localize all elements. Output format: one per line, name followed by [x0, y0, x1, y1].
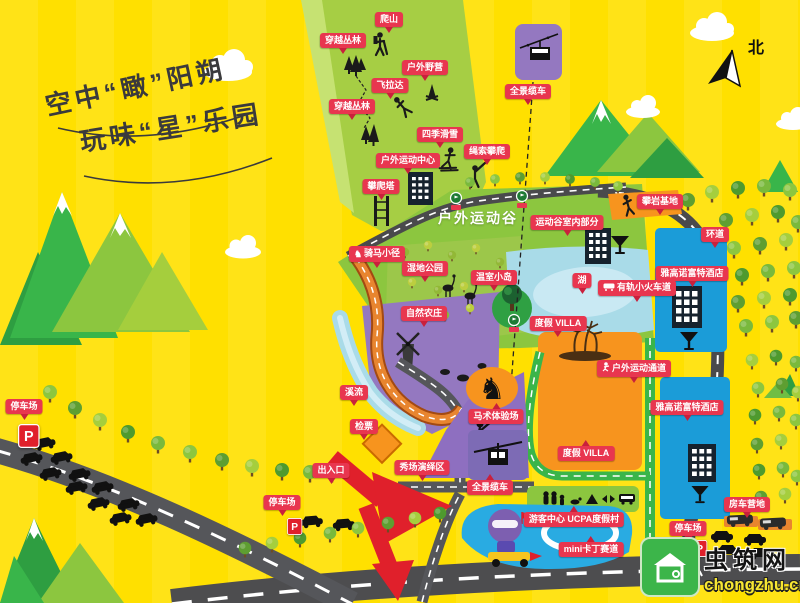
compass: 北 [702, 34, 764, 86]
label-jungle-crossing-1: 穿越丛林 [320, 33, 366, 48]
theme-park-map: ♞ [0, 0, 800, 603]
label-climbing-tower: 攀爬塔 [362, 179, 399, 194]
label-visitor-center: 游客中心 UCPA度假村 [524, 512, 624, 527]
label-novotel-hotel-1: 雅高诺富特酒店 [655, 266, 728, 281]
label-show-performance-area: 秀场演绎区 [394, 460, 449, 475]
label-novotel-hotel-2: 雅高诺富特酒店 [650, 400, 723, 415]
label-parking-left: 停车场 [5, 399, 42, 414]
label-wetland-park: 湿地公园 [402, 261, 448, 276]
label-parking-mid: 停车场 [263, 495, 300, 510]
label-rv-camp: 房车营地 [724, 497, 770, 512]
runner-icon [602, 362, 610, 375]
label-parking-right: 停车场 [669, 521, 706, 536]
label-ring-road: 环道 [701, 227, 729, 242]
parking-sign: P [287, 518, 302, 535]
label-four-season-ski: 四季滑雪 [417, 127, 463, 142]
parking-sign: P [18, 424, 40, 448]
train-icon [603, 283, 615, 294]
watermark-site-name: 虫筑网 [704, 540, 800, 575]
label-panorama-cablecar-top: 全景缆车 [505, 84, 551, 99]
label-greenhouse-island: 温室小岛 [471, 270, 517, 285]
sports-valley-area-title: 户外运动谷 [438, 208, 518, 228]
watermark-house-icon [640, 537, 700, 597]
label-hiking: 爬山 [375, 12, 403, 27]
label-horse-riding-trail: ♞骑马小径 [349, 246, 405, 262]
label-stream: 溪流 [340, 385, 368, 400]
label-rope-climbing: 绳索攀爬 [464, 144, 510, 159]
label-entrance-exit: 出入口 [312, 463, 349, 478]
label-via-ferrata: 飞拉达 [371, 78, 408, 93]
label-mini-train-track: 有轨小火车道 [598, 280, 676, 296]
label-outdoor-camping: 户外野营 [402, 60, 448, 75]
label-jungle-crossing-2: 穿越丛林 [329, 99, 375, 114]
label-equestrian-ground: 马术体验场 [468, 409, 523, 424]
label-holiday-villa-1: 度假 VILLA [530, 316, 587, 331]
horse-icon: ♞ [354, 249, 362, 260]
label-rock-climbing-base: 攀岩基地 [637, 194, 683, 209]
label-mini-kart-track: mini卡丁赛道 [559, 542, 624, 557]
label-panorama-cablecar-bottom: 全景缆车 [467, 480, 513, 495]
label-holiday-villa-2: 度假 VILLA [558, 446, 615, 461]
label-natural-farm: 自然农庄 [401, 306, 447, 321]
label-ticket-check: 检票 [350, 419, 378, 434]
label-valley-indoor-part: 运动谷室内部分 [530, 215, 603, 230]
watermark-site-url: chongzhu.cn [704, 575, 800, 595]
north-label: 北 [748, 34, 764, 58]
label-outdoor-sports-center: 户外运动中心 [376, 153, 440, 168]
label-lake: 湖 [572, 273, 591, 288]
label-outdoor-sports-passage: 户外运动通道 [597, 360, 671, 377]
watermark: 虫筑网 chongzhu.cn [640, 537, 800, 597]
watermark-text: 虫筑网 chongzhu.cn [704, 540, 800, 595]
